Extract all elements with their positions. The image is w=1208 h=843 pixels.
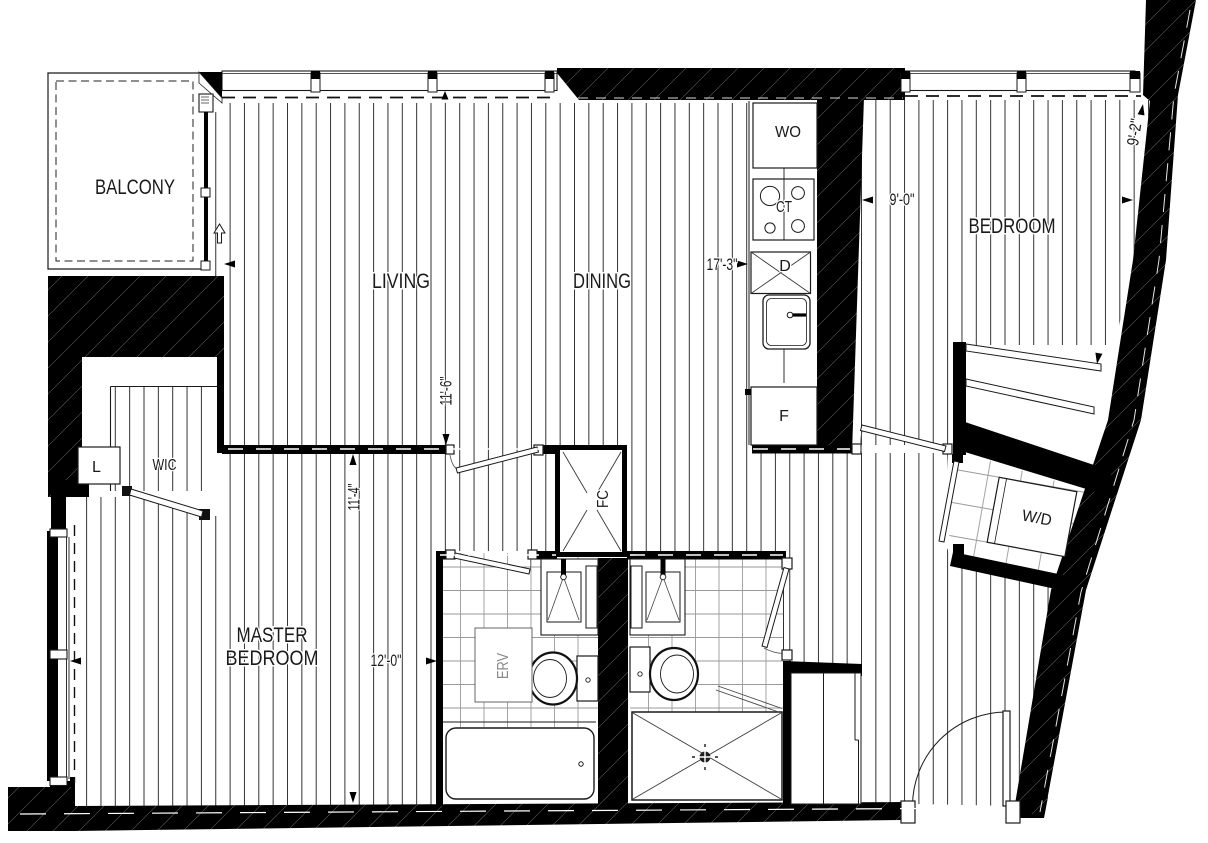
svg-text:BEDROOM: BEDROOM bbox=[969, 214, 1056, 238]
svg-text:MASTER: MASTER bbox=[237, 623, 308, 647]
svg-text:F: F bbox=[779, 408, 789, 425]
svg-text:LIVING: LIVING bbox=[372, 269, 430, 293]
svg-text:BEDROOM: BEDROOM bbox=[226, 646, 319, 670]
svg-text:11'-4": 11'-4" bbox=[346, 483, 364, 510]
svg-text:9'-0": 9'-0" bbox=[890, 191, 915, 209]
svg-text:12'-0": 12'-0" bbox=[371, 652, 402, 670]
svg-text:DINING: DINING bbox=[573, 269, 631, 293]
svg-text:WIC: WIC bbox=[153, 457, 177, 474]
svg-text:D: D bbox=[779, 258, 791, 275]
svg-text:L: L bbox=[92, 459, 101, 476]
svg-text:17'-3": 17'-3" bbox=[707, 256, 738, 274]
svg-text:FC: FC bbox=[595, 490, 612, 508]
svg-text:11'-6": 11'-6" bbox=[438, 376, 456, 405]
svg-text:ERV: ERV bbox=[495, 653, 512, 679]
svg-text:CT: CT bbox=[776, 199, 792, 216]
svg-text:BALCONY: BALCONY bbox=[95, 175, 175, 199]
svg-text:WO: WO bbox=[775, 124, 801, 141]
